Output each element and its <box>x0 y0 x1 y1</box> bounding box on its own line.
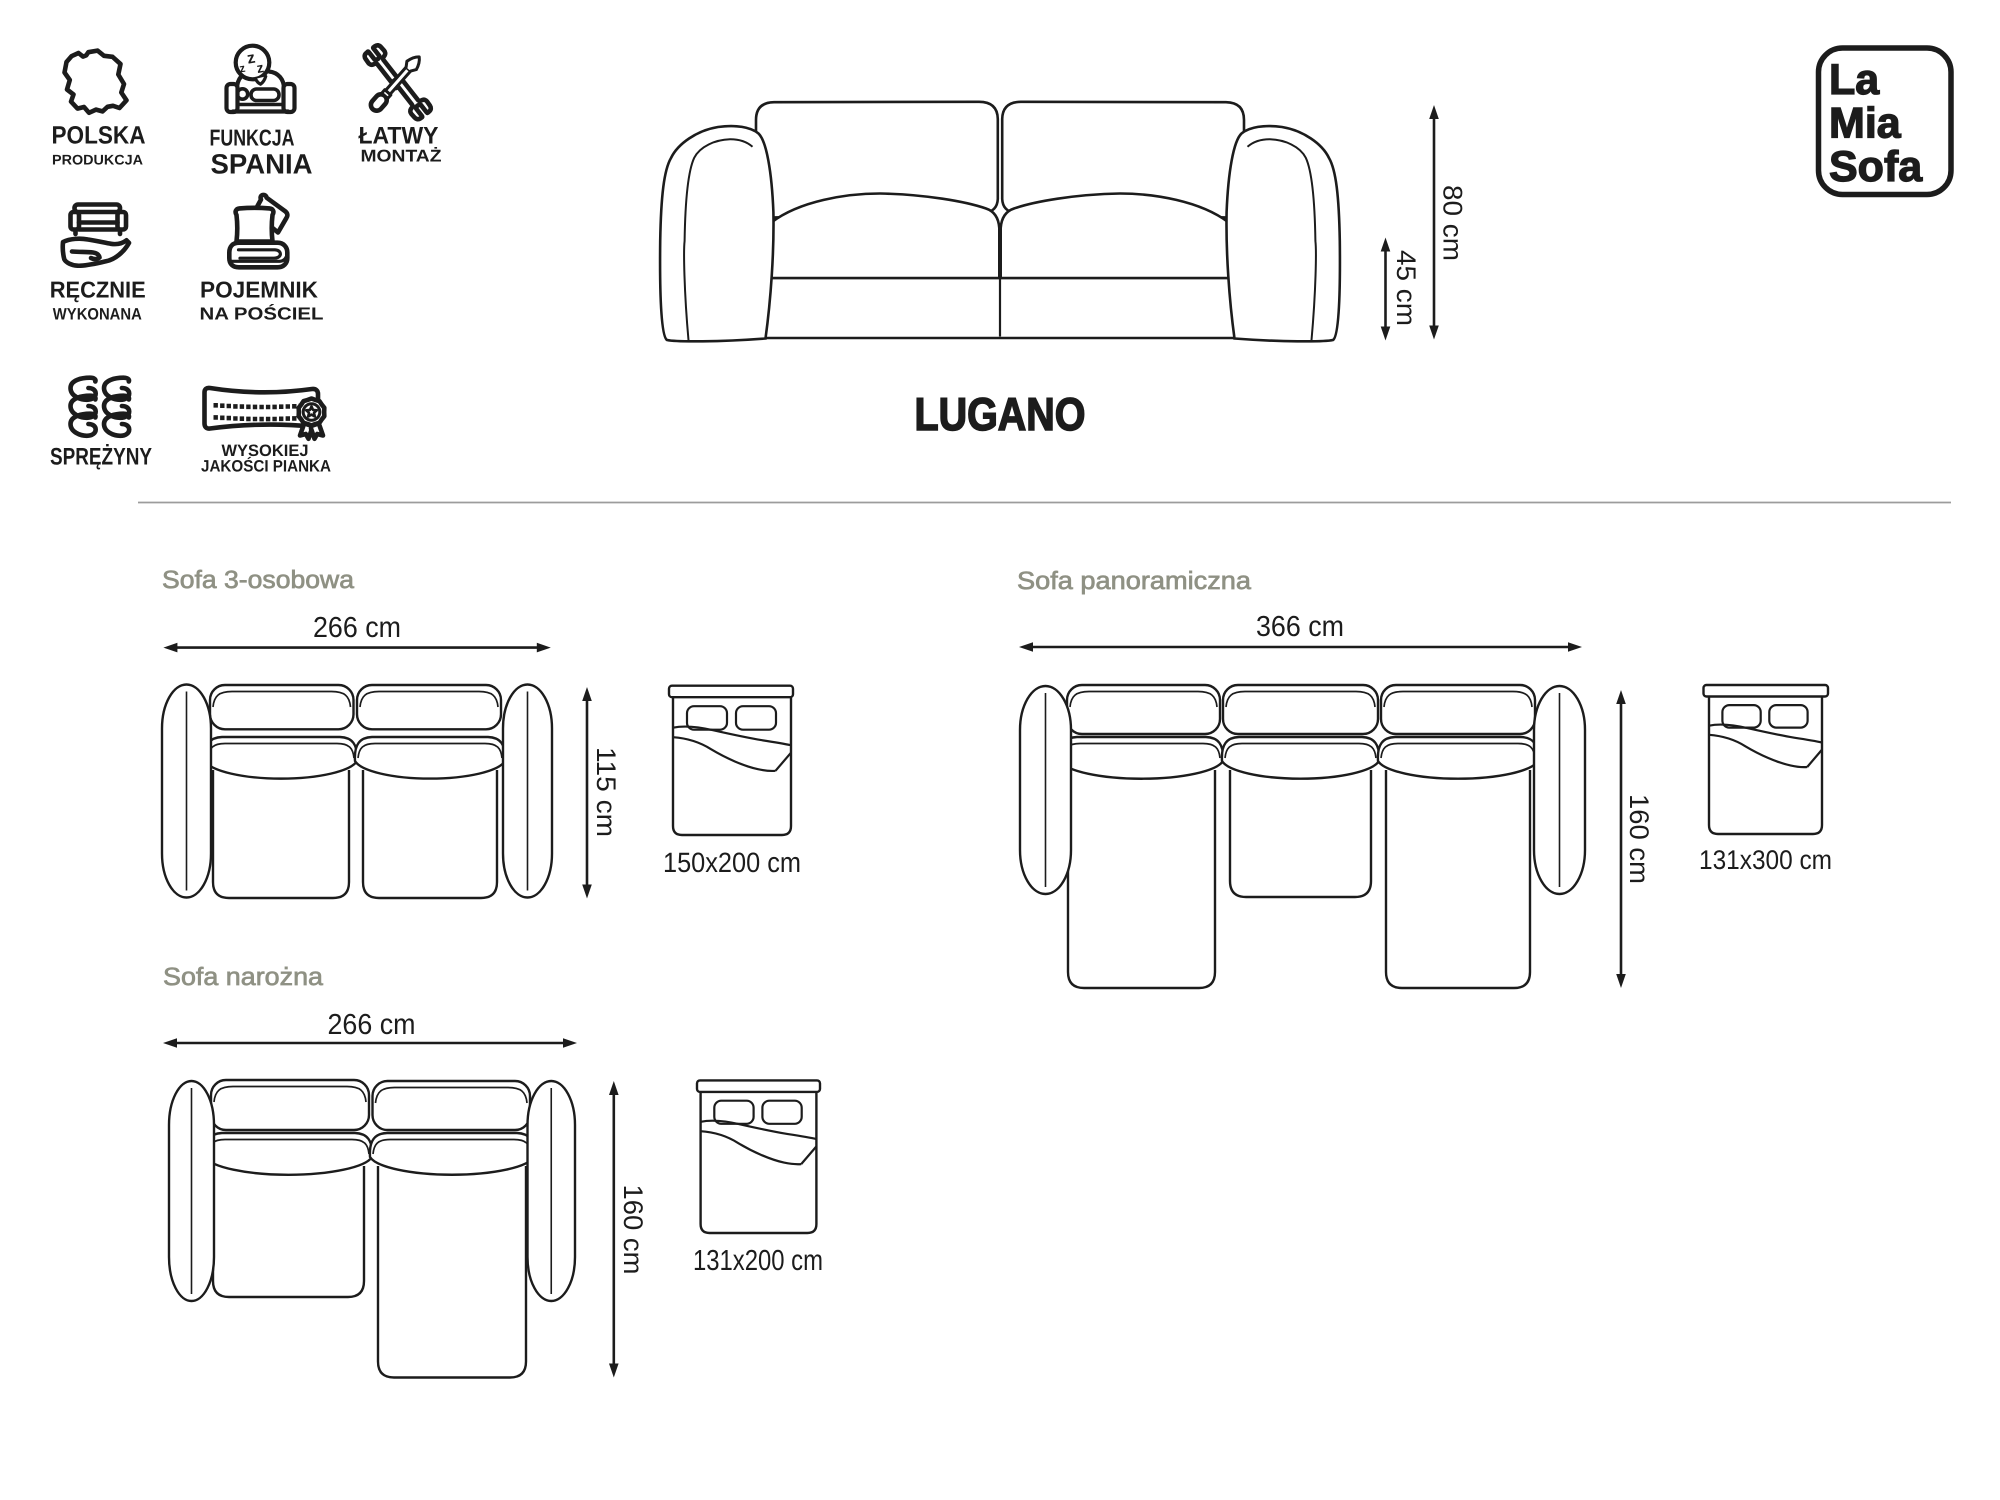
svg-text:RĘCZNIE: RĘCZNIE <box>50 277 146 303</box>
svg-text:131x300 cm: 131x300 cm <box>1699 845 1832 875</box>
svg-text:SPRĘŻYNY: SPRĘŻYNY <box>50 444 152 471</box>
svg-text:Mia: Mia <box>1829 100 1902 148</box>
svg-text:FUNKCJA: FUNKCJA <box>210 125 295 151</box>
svg-text:POJEMNIK: POJEMNIK <box>200 277 318 303</box>
svg-text:JAKOŚCI PIANKA: JAKOŚCI PIANKA <box>201 457 331 476</box>
svg-text:LUGANO: LUGANO <box>915 388 1086 440</box>
svg-text:80 cm: 80 cm <box>1438 185 1468 261</box>
svg-text:Sofa 3-osobowa: Sofa 3-osobowa <box>162 566 354 594</box>
svg-text:131x200 cm: 131x200 cm <box>693 1245 823 1277</box>
svg-text:Sofa: Sofa <box>1829 143 1923 191</box>
svg-text:266 cm: 266 cm <box>313 612 401 644</box>
svg-text:150x200 cm: 150x200 cm <box>663 847 801 878</box>
svg-text:MONTAŻ: MONTAŻ <box>361 147 442 166</box>
svg-text:Sofa panoramiczna: Sofa panoramiczna <box>1017 567 1251 595</box>
svg-text:PRODUKCJA: PRODUKCJA <box>52 152 143 168</box>
svg-text:SPANIA: SPANIA <box>211 149 313 180</box>
svg-text:La: La <box>1829 56 1880 104</box>
svg-text:WYKONANA: WYKONANA <box>53 306 142 324</box>
svg-text:366 cm: 366 cm <box>1256 611 1344 643</box>
svg-text:POLSKA: POLSKA <box>52 122 146 150</box>
svg-text:45 cm: 45 cm <box>1391 250 1421 326</box>
svg-text:115 cm: 115 cm <box>591 747 621 837</box>
svg-text:NA POŚCIEL: NA POŚCIEL <box>200 304 324 324</box>
svg-text:Sofa narożna: Sofa narożna <box>163 963 323 991</box>
svg-text:160 cm: 160 cm <box>618 1185 648 1275</box>
svg-text:160 cm: 160 cm <box>1624 794 1654 884</box>
svg-text:266 cm: 266 cm <box>328 1009 416 1041</box>
